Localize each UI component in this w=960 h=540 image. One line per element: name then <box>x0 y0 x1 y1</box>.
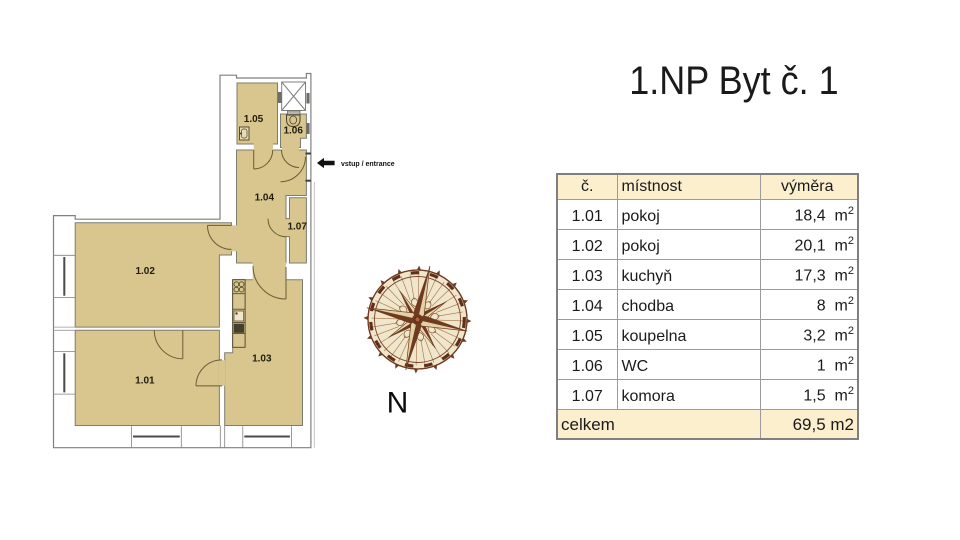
svg-text:1.02: 1.02 <box>135 266 155 277</box>
svg-text:vstup / entrance: vstup / entrance <box>341 161 395 168</box>
svg-text:N: N <box>387 387 409 420</box>
svg-text:1.04: 1.04 <box>255 193 275 204</box>
svg-text:1.07: 1.07 <box>287 221 307 232</box>
svg-text:1.06: 1.06 <box>283 126 303 137</box>
svg-text:1.05: 1.05 <box>244 114 264 125</box>
svg-text:1.03: 1.03 <box>252 353 272 364</box>
svg-text:1.01: 1.01 <box>135 376 155 387</box>
